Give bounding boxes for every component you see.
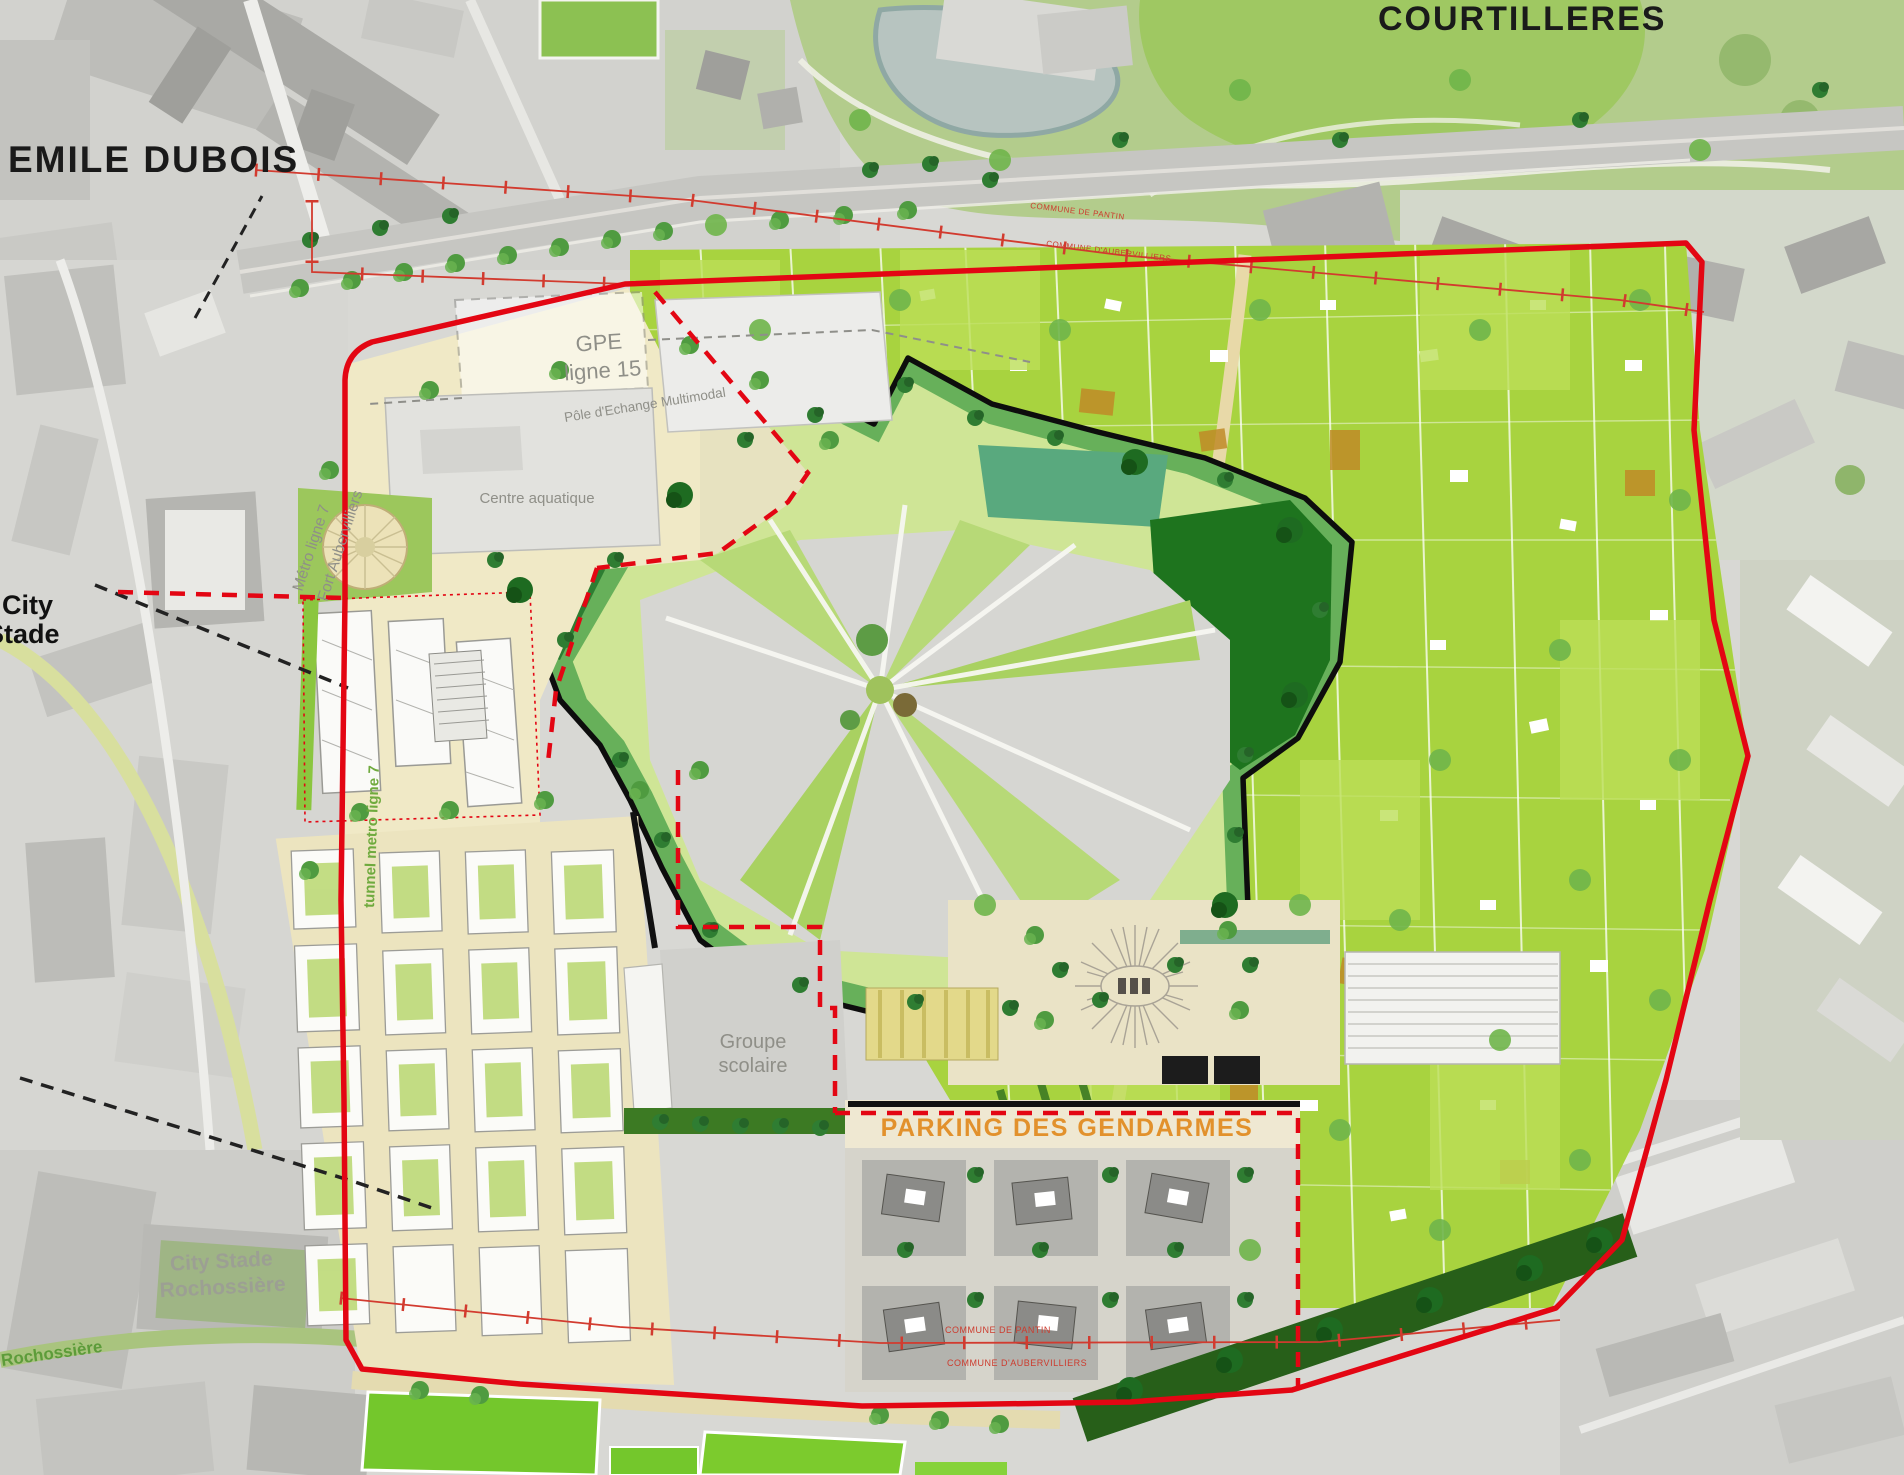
label-city-stade-2: Stade — [0, 619, 60, 649]
map-canvas: EMILE DUBOIS COURTILLERES GPE ligne 15 P… — [0, 0, 1904, 1475]
label-groupe-scolaire-2: scolaire — [719, 1055, 788, 1077]
label-gpe-1: GPE — [575, 328, 623, 356]
label-groupe-scolaire-1: Groupe — [720, 1031, 787, 1053]
label-parking-gendarmes: PARKING DES GENDARMES — [881, 1114, 1254, 1142]
housing-grid — [275, 815, 674, 1398]
label-commune-aubervilliers-bottom: COMMUNE D'AUBERVILLIERS — [947, 1358, 1087, 1368]
label-courtilleres: COURTILLERES — [1378, 0, 1666, 38]
label-centre-aquatique: Centre aquatique — [479, 490, 594, 507]
label-commune-pantin-bottom: COMMUNE DE PANTIN — [945, 1325, 1051, 1335]
masterplan-map: EMILE DUBOIS COURTILLERES GPE ligne 15 P… — [0, 0, 1904, 1475]
label-city-stade-1: City — [2, 590, 53, 620]
label-emile-dubois: EMILE DUBOIS — [8, 139, 299, 180]
